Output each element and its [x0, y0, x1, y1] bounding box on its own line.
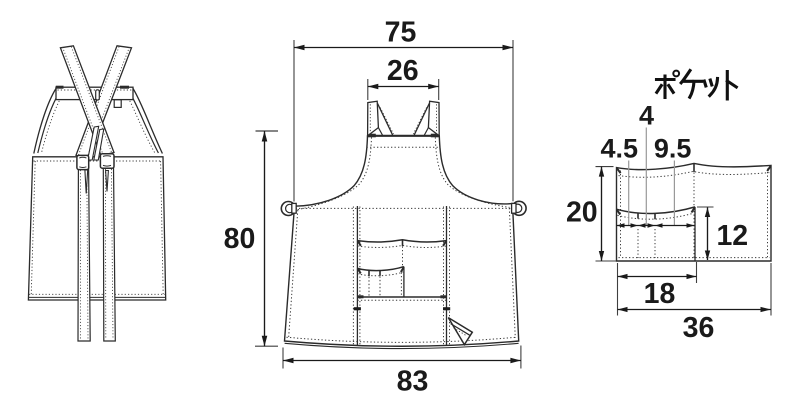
svg-text:12: 12 [716, 220, 748, 252]
svg-text:83: 83 [397, 366, 429, 398]
svg-text:75: 75 [385, 17, 417, 49]
svg-text:26: 26 [387, 55, 419, 87]
svg-text:4.5: 4.5 [601, 134, 639, 164]
svg-text:18: 18 [644, 278, 676, 310]
svg-text:36: 36 [683, 312, 715, 344]
svg-text:9.5: 9.5 [654, 134, 692, 164]
svg-text:20: 20 [566, 196, 598, 228]
svg-text:80: 80 [224, 223, 256, 255]
svg-text:4: 4 [639, 100, 654, 130]
